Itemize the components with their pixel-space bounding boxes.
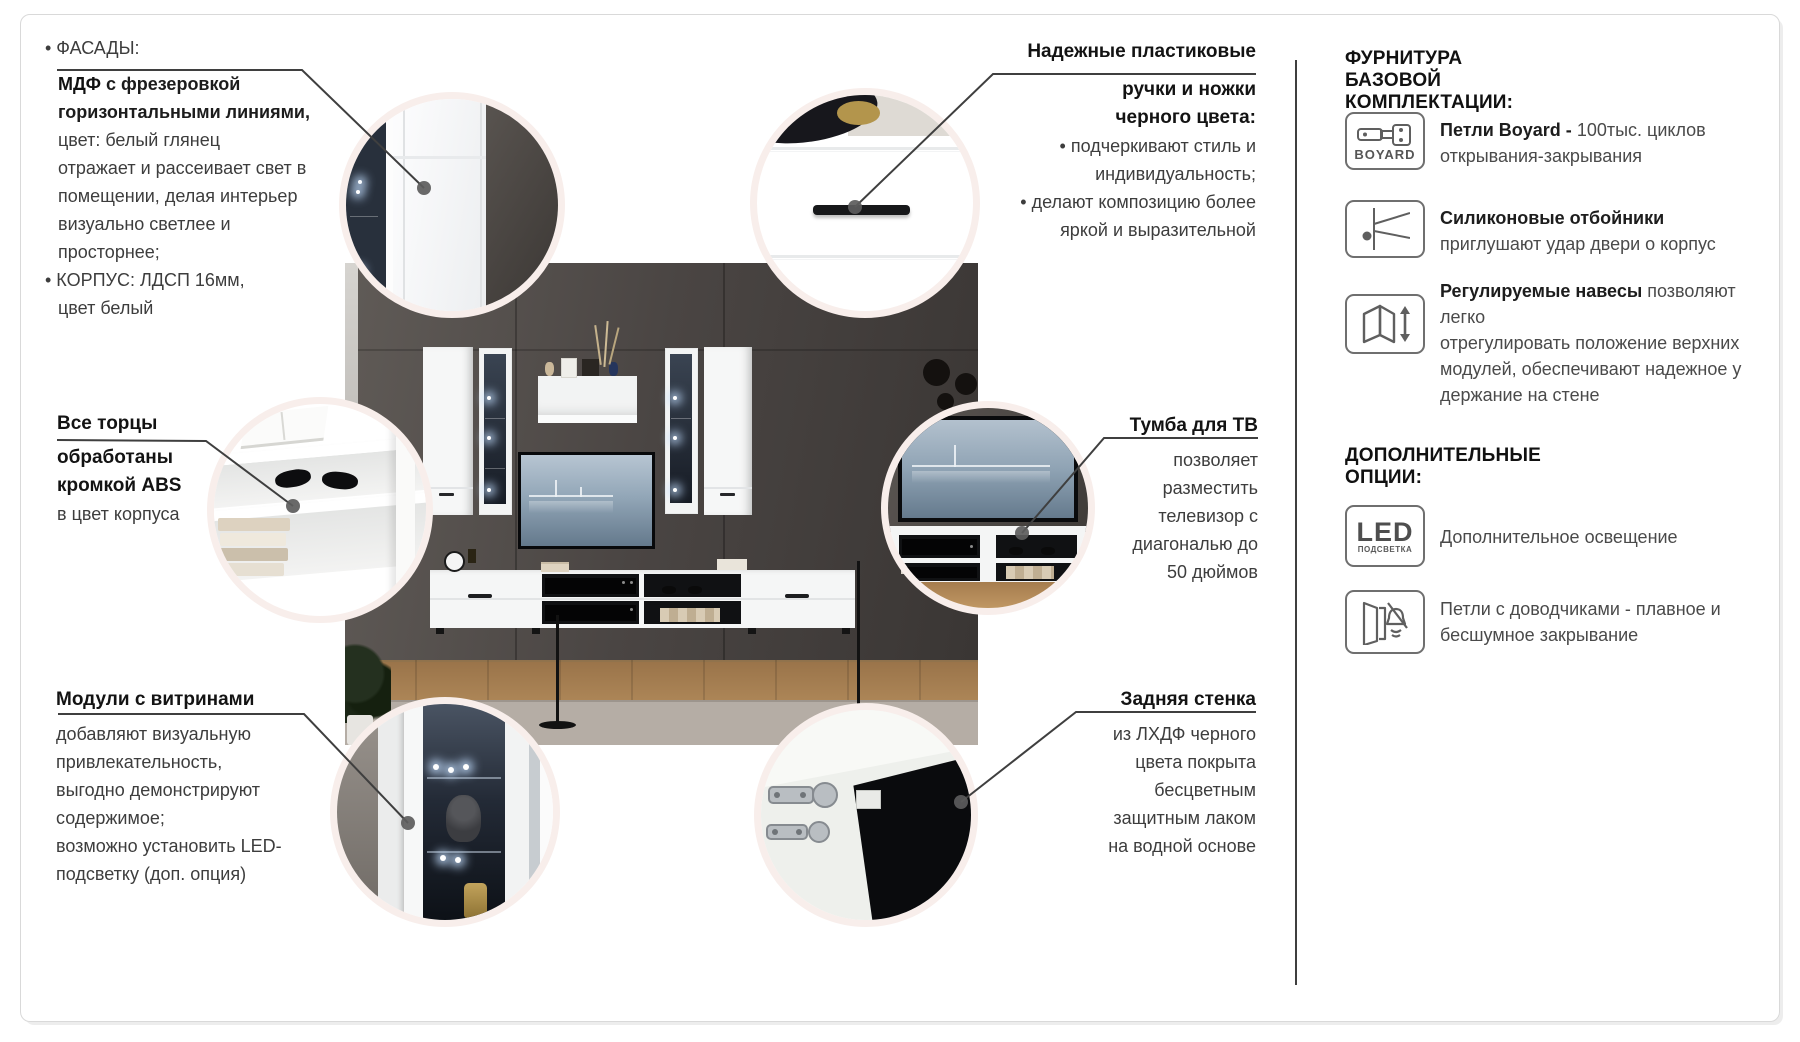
callout-line: МДФ с фрезеровкой bbox=[45, 70, 345, 98]
boyard-hinge-glyph bbox=[1356, 122, 1414, 148]
led-dot bbox=[440, 855, 446, 861]
item-line: модулей, обеспечивают надежное у bbox=[1440, 356, 1785, 382]
led-dot bbox=[455, 857, 461, 863]
book bbox=[218, 548, 288, 561]
facade-edge-line bbox=[403, 99, 405, 311]
callout-line: позволяет bbox=[1038, 446, 1258, 474]
callout-abs-edges: Все торцы обработаны кромкой ABS в цвет … bbox=[57, 410, 297, 528]
callout-facades: • ФАСАДЫ: МДФ с фрезеровкой горизонтальн… bbox=[45, 34, 345, 322]
bridge-pylon bbox=[954, 445, 956, 467]
callout-line: визуально светлее и bbox=[45, 210, 345, 238]
callout-line: выгодно демонстрируют bbox=[56, 776, 336, 804]
facade-edge-line bbox=[480, 99, 482, 311]
callout-title: обработаны bbox=[57, 444, 297, 472]
drawer-handle bbox=[468, 594, 492, 598]
led-dot bbox=[433, 764, 439, 770]
vitrine-closeup bbox=[346, 99, 386, 311]
books-stack bbox=[717, 559, 747, 570]
cabinet-edge bbox=[540, 704, 553, 920]
stand-opening bbox=[644, 601, 741, 624]
callout-line: бесцветным bbox=[1036, 776, 1256, 804]
corner-bracket bbox=[856, 790, 881, 809]
vitrine-interior bbox=[423, 704, 505, 920]
sidebar-item-hangers: Регулируемые навесы позволяют легко отре… bbox=[1440, 278, 1785, 408]
stand-opening bbox=[644, 574, 741, 597]
callout-title: Надежные пластиковые bbox=[966, 38, 1256, 66]
led-badge-sub: ПОДСВЕТКА bbox=[1358, 545, 1413, 554]
sidebar-section2-title: ДОПОЛНИТЕЛЬНЫЕ ОПЦИИ: bbox=[1345, 445, 1541, 489]
wall-hat-decor bbox=[955, 373, 977, 395]
callout-line: просторнее; bbox=[45, 238, 345, 266]
callout-line: защитным лаком bbox=[1036, 804, 1256, 832]
wall-closeup bbox=[486, 99, 558, 311]
receiver-knob bbox=[630, 608, 633, 611]
item-line: Дополнительное освещение bbox=[1440, 524, 1785, 550]
black-handle-closeup bbox=[813, 205, 910, 215]
callout-title: Задняя стенка bbox=[1036, 686, 1256, 714]
callout-circle-back-panel bbox=[754, 703, 978, 927]
callout-line: • ФАСАДЫ: bbox=[45, 34, 345, 62]
diffuser bbox=[468, 549, 476, 563]
stand-leg bbox=[842, 628, 850, 634]
silicone-bumper-glyph bbox=[1360, 208, 1410, 250]
item-line: отрегулировать положение верхних bbox=[1440, 330, 1785, 356]
drawer-groove bbox=[757, 255, 973, 258]
infographic-page: • ФАСАДЫ: МДФ с фрезеровкой горизонтальн… bbox=[0, 0, 1800, 1042]
led-dot bbox=[358, 180, 362, 184]
led-light-icon: LED ПОДСВЕТКА bbox=[1345, 505, 1425, 567]
callout-line: добавляют визуальную bbox=[56, 720, 336, 748]
item-line: бесшумное закрывание bbox=[1440, 622, 1785, 648]
led-dot bbox=[487, 488, 491, 492]
wall-shelf bbox=[538, 376, 637, 423]
cabinet-handle bbox=[439, 493, 454, 496]
drawer-handle bbox=[785, 594, 809, 598]
callout-tv-unit: Тумба для ТВ позволяет разместить телеви… bbox=[1038, 412, 1258, 586]
cabinet-handle bbox=[720, 493, 735, 496]
books bbox=[660, 608, 720, 622]
led-dot bbox=[448, 767, 454, 773]
glass-shelf bbox=[485, 468, 505, 469]
photo-frame-decor bbox=[582, 359, 599, 376]
facade-groove bbox=[393, 156, 486, 159]
callout-handles: Надежные пластиковые ручки и ножки черно… bbox=[966, 38, 1256, 244]
receiver-knob bbox=[970, 545, 973, 548]
stand-leg bbox=[748, 628, 756, 634]
shelf-lip bbox=[538, 415, 637, 423]
callout-line: на водной основе bbox=[1036, 832, 1256, 860]
water-reflection bbox=[912, 471, 1050, 483]
callout-line: 50 дюймов bbox=[1038, 558, 1258, 586]
stand-opening bbox=[899, 563, 980, 580]
callout-circle-vitrine bbox=[330, 697, 560, 927]
bridge-line bbox=[529, 495, 613, 497]
glass-shelf bbox=[427, 851, 501, 853]
callout-line: возможно установить LED- bbox=[56, 832, 336, 860]
av-receiver bbox=[902, 567, 977, 577]
tv-screen bbox=[518, 452, 655, 549]
callout-title: Модули с витринами bbox=[56, 686, 336, 714]
sidebar-item-bumpers: Силиконовые отбойники приглушают удар дв… bbox=[1440, 205, 1785, 257]
cabinet-side bbox=[378, 704, 404, 920]
glass-edge bbox=[529, 704, 540, 920]
adjustable-hanger-glyph bbox=[1358, 302, 1412, 346]
callout-line: цвет: белый глянец bbox=[45, 126, 345, 154]
vitrine-glass bbox=[484, 354, 506, 504]
bridge-pylon bbox=[555, 480, 557, 497]
boyard-badge-label: BOYARD bbox=[1354, 148, 1415, 161]
gamepad bbox=[662, 586, 676, 594]
callout-circle-facade bbox=[339, 92, 565, 318]
item-line: открывания-закрывания bbox=[1440, 143, 1785, 169]
water-reflection bbox=[529, 501, 613, 513]
sidebar-item-boyard: Петли Boyard - 100тыс. циклов открывания… bbox=[1440, 117, 1785, 169]
callout-line: диагональю до bbox=[1038, 530, 1258, 558]
callout-circle-handle bbox=[750, 88, 980, 318]
soft-close-glyph bbox=[1358, 599, 1412, 645]
table-clock bbox=[444, 551, 465, 572]
wall-hat-decor bbox=[923, 359, 950, 386]
white-facade-closeup bbox=[393, 99, 486, 311]
item-line: Петли Boyard - 100тыс. циклов bbox=[1440, 117, 1785, 143]
item-line: Петли с доводчиками - плавное и bbox=[1440, 596, 1785, 622]
led-dot bbox=[463, 764, 469, 770]
gold-vase bbox=[464, 883, 487, 918]
callout-line: телевизор с bbox=[1038, 502, 1258, 530]
tv-stand bbox=[430, 570, 855, 628]
drawer-groove bbox=[757, 151, 973, 152]
vase-decor bbox=[545, 362, 554, 376]
adjustable-hanger-icon bbox=[1345, 294, 1425, 354]
glass-shelf bbox=[350, 216, 378, 217]
callout-line: из ЛХДФ черного bbox=[1036, 720, 1256, 748]
item-line: Силиконовые отбойники bbox=[1440, 205, 1785, 231]
callout-line: индивидуальность; bbox=[966, 160, 1256, 188]
tv-picture bbox=[521, 455, 652, 546]
callout-title: черного цвета: bbox=[966, 104, 1256, 132]
callout-line: помещении, делая интерьер bbox=[45, 182, 345, 210]
vertical-divider bbox=[1295, 60, 1297, 985]
callout-line: содержимое; bbox=[56, 804, 336, 832]
wall-closeup bbox=[337, 704, 378, 920]
glass-shelf bbox=[427, 777, 501, 779]
bridge-line bbox=[912, 465, 1050, 467]
callout-title: ручки и ножки bbox=[966, 76, 1256, 104]
callout-line: в цвет корпуса bbox=[57, 500, 297, 528]
sidebar-section1-title: ФУРНИТУРА БАЗОВОЙ КОМПЛЕКТАЦИИ: bbox=[1345, 48, 1513, 114]
vitrine-cabinet-left bbox=[479, 348, 512, 515]
callout-back-panel: Задняя стенка из ЛХДФ черного цвета покр… bbox=[1036, 686, 1256, 860]
item-line: Регулируемые навесы позволяют легко bbox=[1440, 278, 1785, 330]
lightbox-decor bbox=[561, 358, 577, 378]
sidebar-item-softclose: Петли с доводчиками - плавное и бесшумно… bbox=[1440, 596, 1785, 648]
vitrine-frame bbox=[404, 704, 423, 920]
led-dot bbox=[673, 488, 677, 492]
sidebar-item-led: Дополнительное освещение bbox=[1440, 524, 1785, 550]
book bbox=[220, 533, 286, 546]
callout-line: • КОРПУС: ЛДСП 16мм, bbox=[45, 266, 345, 294]
glass-shelf bbox=[485, 418, 505, 419]
floor-lamp-pole bbox=[556, 615, 559, 727]
stand-opening bbox=[899, 535, 980, 558]
owl-figurine bbox=[446, 795, 480, 843]
boyard-hinge-icon: BOYARD bbox=[1345, 112, 1425, 170]
shelf-side-panel bbox=[396, 404, 415, 616]
callout-line: разместить bbox=[1038, 474, 1258, 502]
book bbox=[222, 563, 283, 576]
callout-line: яркой и выразительной bbox=[966, 216, 1256, 244]
receiver-knob bbox=[630, 581, 633, 584]
item-line: приглушают удар двери о корпус bbox=[1440, 231, 1785, 257]
callout-title: Тумба для ТВ bbox=[1038, 412, 1258, 440]
callout-vitrines: Модули с витринами добавляют визуальную … bbox=[56, 686, 336, 888]
item-line: держание на стене bbox=[1440, 382, 1785, 408]
stand-leg bbox=[532, 628, 540, 634]
wall-cabinet-right bbox=[704, 347, 752, 515]
av-receiver bbox=[902, 539, 977, 555]
callout-line: • подчеркивают стиль и bbox=[966, 132, 1256, 160]
stand-opening bbox=[542, 574, 639, 597]
callout-line: • делают композицию более bbox=[966, 188, 1256, 216]
led-badge-main: LED bbox=[1357, 519, 1414, 545]
led-dot bbox=[487, 436, 491, 440]
led-dot bbox=[673, 436, 677, 440]
silicone-bumper-icon bbox=[1345, 200, 1425, 258]
vitrine-cabinet-right bbox=[665, 348, 698, 514]
vitrine-glass bbox=[670, 354, 692, 503]
led-dot bbox=[487, 396, 491, 400]
led-dot bbox=[673, 396, 677, 400]
callout-line: горизонтальными линиями, bbox=[45, 98, 345, 126]
cabinet-groove bbox=[704, 487, 752, 489]
callout-title: Все торцы bbox=[57, 410, 297, 438]
vitrine-frame bbox=[505, 704, 529, 920]
drawer-groove bbox=[757, 147, 973, 150]
callout-line: подсветку (доп. опция) bbox=[56, 860, 336, 888]
gamepad bbox=[1009, 547, 1023, 555]
callout-line: отражает и рассеивает свет в bbox=[45, 154, 345, 182]
glass-shelf bbox=[671, 418, 691, 419]
gamepad bbox=[688, 586, 702, 594]
receiver-knob bbox=[622, 581, 625, 584]
callout-line: привлекательность, bbox=[56, 748, 336, 776]
stand-split-line bbox=[430, 598, 855, 600]
hinge-closeup-icon bbox=[765, 777, 855, 897]
led-dot bbox=[357, 269, 361, 273]
bridge-pylon bbox=[580, 487, 582, 497]
stand-leg bbox=[436, 628, 444, 634]
callout-line: цвет белый bbox=[45, 294, 345, 322]
floor-lamp-pole bbox=[857, 561, 860, 721]
led-dot bbox=[356, 190, 360, 194]
soft-close-hinge-icon bbox=[1345, 590, 1425, 654]
callout-title: кромкой ABS bbox=[57, 472, 297, 500]
books-flat bbox=[541, 562, 569, 572]
callout-line: цвета покрыта bbox=[1036, 748, 1256, 776]
drawer-groove bbox=[757, 259, 973, 260]
